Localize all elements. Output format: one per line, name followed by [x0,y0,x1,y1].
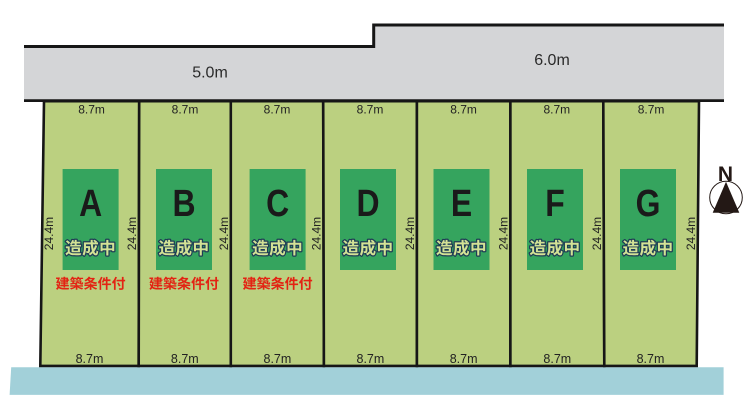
svg-text:24.4m: 24.4m [497,217,511,250]
svg-text:8.7m: 8.7m [78,103,105,117]
svg-text:D: D [356,182,379,224]
svg-text:24.4m: 24.4m [42,217,56,250]
svg-text:24.4m: 24.4m [684,217,698,250]
svg-text:G: G [636,182,661,224]
svg-text:F: F [545,182,564,224]
svg-text:24.4m: 24.4m [125,217,139,250]
svg-text:8.7m: 8.7m [450,352,478,366]
svg-text:6.0m: 6.0m [534,52,570,69]
svg-text:8.7m: 8.7m [264,352,292,366]
svg-text:8.7m: 8.7m [76,352,104,366]
svg-text:8.7m: 8.7m [357,103,384,117]
svg-text:24.4m: 24.4m [403,217,417,250]
svg-text:24.4m: 24.4m [310,217,324,250]
svg-text:8.7m: 8.7m [171,352,199,366]
svg-text:8.7m: 8.7m [637,352,665,366]
svg-text:8.7m: 8.7m [450,103,477,117]
svg-text:8.7m: 8.7m [543,352,571,366]
svg-text:C: C [266,182,289,224]
svg-text:B: B [172,182,195,224]
svg-text:E: E [451,182,472,224]
svg-text:8.7m: 8.7m [357,352,385,366]
svg-text:A: A [79,182,102,224]
svg-text:8.7m: 8.7m [638,103,665,117]
svg-text:24.4m: 24.4m [590,217,604,250]
svg-text:8.7m: 8.7m [543,103,570,117]
svg-text:8.7m: 8.7m [264,103,291,117]
svg-text:24.4m: 24.4m [217,217,231,250]
svg-text:8.7m: 8.7m [172,103,199,117]
svg-text:5.0m: 5.0m [192,64,228,81]
